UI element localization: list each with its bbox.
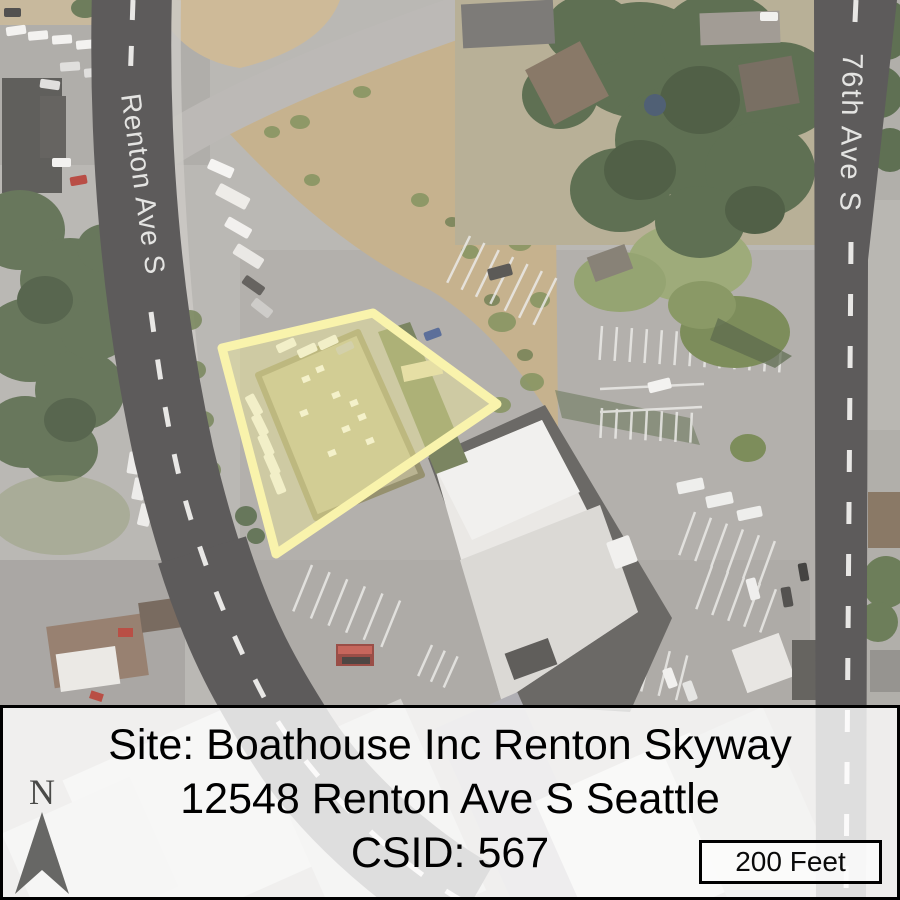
site-title: Site: Boathouse Inc Renton Skyway (3, 718, 897, 772)
road-label-76th: 76th Ave S (833, 53, 868, 213)
north-arrow: N (11, 766, 75, 898)
site-address: 12548 Renton Ave S Seattle (3, 772, 897, 826)
scale-bar: 200 Feet (699, 840, 882, 884)
north-label: N (29, 772, 55, 812)
site-map-export: Renton Ave S 76th Ave S Site: Boathouse … (0, 0, 900, 900)
caption-bar: Site: Boathouse Inc Renton Skyway 12548 … (0, 705, 900, 900)
scale-bar-label: 200 Feet (735, 846, 846, 878)
north-arrow-icon (15, 812, 69, 894)
